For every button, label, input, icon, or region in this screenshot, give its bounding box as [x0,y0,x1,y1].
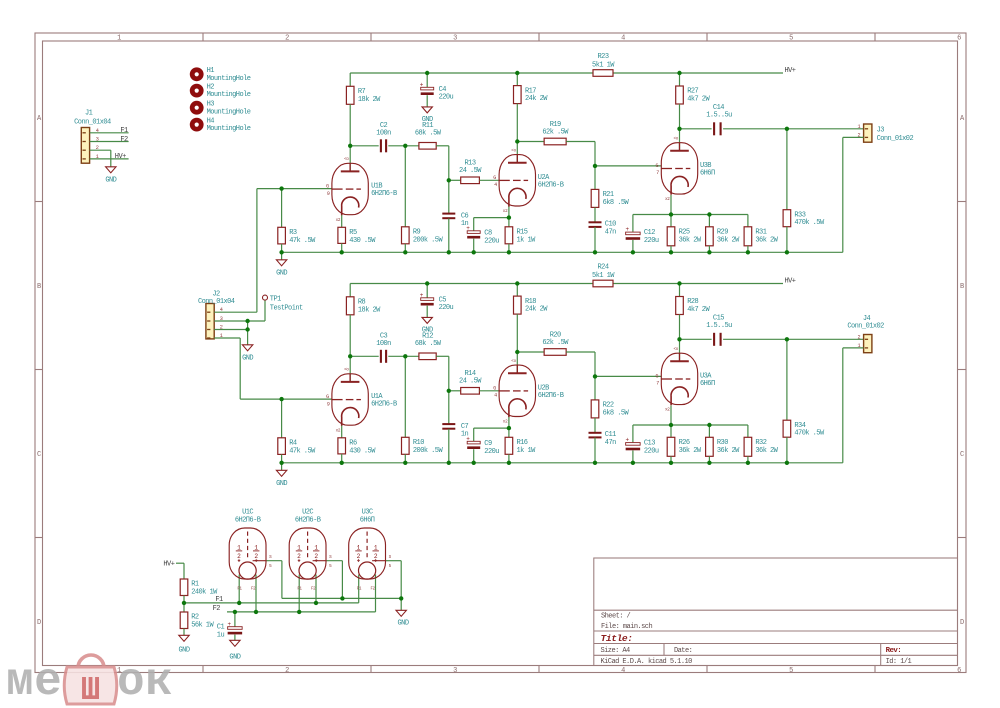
svg-text:220u: 220u [484,448,499,456]
svg-text:220u: 220u [644,447,659,455]
svg-text:24k 2W: 24k 2W [525,95,548,103]
svg-text:<o: <o [344,368,349,373]
svg-text:100n: 100n [376,129,391,137]
svg-text:HV+: HV+ [163,560,174,568]
svg-text:KiCad E.D.A. kicad 5.1.10: KiCad E.D.A. kicad 5.1.10 [601,658,693,666]
svg-text:TP1: TP1 [270,296,281,304]
svg-text:F2: F2 [311,588,316,592]
svg-text:<o: <o [674,137,679,142]
svg-text:HV+: HV+ [785,278,796,286]
svg-text:430 .5W: 430 .5W [349,237,376,245]
svg-text:U3A: U3A [700,372,712,380]
svg-text:x2: x2 [336,428,341,433]
svg-text:6H2П6-B: 6H2П6-B [371,190,397,198]
svg-text:G: G [656,163,659,169]
svg-text:R34: R34 [794,422,805,430]
svg-text:9: 9 [327,191,330,197]
svg-text:G: G [493,386,496,392]
svg-text:1: 1 [117,35,121,43]
svg-text:H1: H1 [207,67,215,75]
svg-text:Ш: Ш [81,672,101,708]
svg-text:F1: F1 [215,596,223,604]
svg-text:MountingHole: MountingHole [207,108,251,116]
svg-text:R24: R24 [598,263,609,271]
svg-text:R21: R21 [603,191,614,199]
svg-text:47n: 47n [605,439,616,447]
svg-text:4: 4 [621,35,625,43]
svg-text:R7: R7 [358,88,366,96]
svg-text:24k 2W: 24k 2W [525,306,548,314]
svg-text:430 .5W: 430 .5W [349,447,376,455]
svg-text:36k 2W: 36k 2W [679,236,702,244]
svg-text:220u: 220u [439,93,454,101]
svg-text:R5: R5 [349,229,357,237]
svg-text:R8: R8 [358,299,366,307]
svg-text:4: 4 [621,667,625,675]
svg-text:6H6П: 6H6П [360,516,375,524]
svg-text:U1B: U1B [371,182,382,190]
svg-text:B: B [960,283,964,291]
svg-text:U3C: U3C [362,509,373,517]
svg-text:A: A [37,115,42,123]
svg-text:62k .5W: 62k .5W [542,339,569,347]
svg-text:6k8 .5W: 6k8 .5W [603,199,630,207]
svg-text:x2: x2 [665,197,670,202]
svg-text:7: 7 [656,170,659,176]
svg-text:240k 1W: 240k 1W [191,589,218,597]
svg-text:MountingHole: MountingHole [207,125,251,133]
svg-text:2: 2 [285,35,289,43]
svg-text:R3: R3 [289,229,297,237]
svg-text:1: 1 [858,343,861,349]
svg-text:Size: A4: Size: A4 [601,647,631,655]
svg-text:S: S [389,555,392,560]
svg-text:F2: F2 [371,588,376,592]
svg-text:R9: R9 [413,229,421,237]
svg-text:C1: C1 [217,624,225,632]
svg-text:36k 2W: 36k 2W [717,447,740,455]
svg-text:18k 2W: 18k 2W [358,306,381,314]
svg-text:F2: F2 [213,605,221,613]
svg-text:Sheet: /: Sheet: / [601,612,631,620]
svg-text:GND: GND [398,619,409,627]
svg-text:R16: R16 [517,439,528,447]
svg-text:200k .5W: 200k .5W [413,447,444,455]
svg-text:R29: R29 [717,229,728,237]
svg-text:4k7 2W: 4k7 2W [687,306,710,314]
svg-text:G: G [493,175,496,181]
svg-text:R25: R25 [679,229,690,237]
svg-text:HV+: HV+ [785,67,796,75]
svg-text:ок: ок [117,656,173,708]
svg-text:Rev:: Rev: [886,647,902,655]
svg-text:18k 2W: 18k 2W [358,96,381,104]
svg-text:100n: 100n [376,340,391,348]
svg-text:x2: x2 [665,408,670,413]
svg-text:Date:: Date: [674,647,692,655]
svg-text:GND: GND [105,177,116,185]
svg-text:7: 7 [656,381,659,387]
svg-text:U3B: U3B [700,162,711,170]
svg-text:1k 1W: 1k 1W [517,447,537,455]
svg-text:R6: R6 [349,440,357,448]
svg-text:220u: 220u [484,237,499,245]
svg-text:6H2П6-B: 6H2П6-B [235,516,261,524]
svg-text:470k .5W: 470k .5W [794,219,825,227]
svg-text:U2B: U2B [538,384,549,392]
svg-text:47k .5W: 47k .5W [289,447,316,455]
svg-text:GND: GND [242,355,253,363]
svg-text:R28: R28 [687,298,698,306]
svg-text:<o: <o [344,157,349,162]
svg-text:R2: R2 [191,614,199,622]
svg-text:R1: R1 [191,581,199,589]
svg-text:File: main.sch: File: main.sch [601,623,652,631]
svg-text:C: C [37,451,41,459]
svg-text:R18: R18 [525,298,536,306]
svg-text:R22: R22 [603,402,614,410]
svg-text:GND: GND [179,646,190,654]
svg-text:C9: C9 [484,440,492,448]
svg-text:U1A: U1A [371,393,383,401]
svg-text:220u: 220u [439,304,454,312]
svg-text:36k 2W: 36k 2W [679,447,702,455]
svg-text:R27: R27 [687,88,698,96]
svg-text:x2: x2 [336,218,341,223]
svg-text:220u: 220u [644,237,659,245]
svg-text:1.5..5u: 1.5..5u [706,322,732,330]
svg-text:U1C: U1C [242,509,253,517]
svg-text:47k .5W: 47k .5W [289,237,316,245]
svg-text:5: 5 [329,564,332,569]
svg-text:Conn_01x02: Conn_01x02 [847,322,884,330]
svg-text:Conn_01x04: Conn_01x04 [74,119,111,127]
svg-text:B: B [37,283,41,291]
svg-text:x2: x2 [503,209,508,214]
svg-text:D: D [37,619,41,627]
svg-text:R17: R17 [525,87,536,95]
svg-text:S: S [329,555,332,560]
svg-text:Conn_01x04: Conn_01x04 [198,298,235,306]
svg-text:<o: <o [511,149,516,154]
svg-text:J1: J1 [85,109,93,117]
svg-text:470k .5W: 470k .5W [794,430,825,438]
svg-text:R30: R30 [717,439,728,447]
svg-text:4: 4 [494,182,497,188]
svg-text:F1: F1 [120,127,128,135]
svg-text:6H6П: 6H6П [700,380,715,388]
svg-text:G: G [326,394,329,400]
svg-text:1k 1W: 1k 1W [517,236,537,244]
svg-text:R4: R4 [289,440,297,448]
svg-text:62k .5W: 62k .5W [542,128,569,136]
svg-text:GND: GND [229,654,240,662]
svg-text:G: G [656,374,659,380]
svg-text:U2C: U2C [302,509,313,517]
svg-text:C: C [960,451,964,459]
svg-text:5k1 1W: 5k1 1W [592,61,615,69]
svg-text:200k .5W: 200k .5W [413,236,444,244]
svg-text:D: D [960,619,964,627]
svg-text:U2A: U2A [538,174,550,182]
svg-text:R15: R15 [517,229,528,237]
svg-text:6: 6 [957,35,961,43]
svg-text:1.5..5u: 1.5..5u [706,112,732,120]
svg-text:68k .5W: 68k .5W [415,129,442,137]
svg-text:36k 2W: 36k 2W [755,447,778,455]
svg-text:C8: C8 [484,230,492,238]
svg-text:6H2П6-B: 6H2П6-B [295,516,321,524]
svg-text:F1: F1 [297,588,302,592]
svg-text:36k 2W: 36k 2W [717,236,740,244]
svg-text:x2: x2 [503,420,508,425]
svg-text:C14: C14 [713,104,724,112]
svg-text:68k .5W: 68k .5W [415,340,442,348]
svg-text:J3: J3 [877,126,885,134]
svg-text:56k 1W: 56k 1W [191,622,214,630]
svg-text:5: 5 [269,564,272,569]
svg-text:ме: ме [6,656,62,708]
svg-text:3: 3 [453,667,457,675]
svg-text:C12: C12 [644,229,655,237]
svg-text:GND: GND [276,270,287,278]
svg-text:2: 2 [858,133,861,139]
svg-text:F1: F1 [357,588,362,592]
svg-text:R23: R23 [598,53,609,61]
svg-text:R31: R31 [755,229,766,237]
svg-text:G: G [326,184,329,190]
svg-text:R26: R26 [679,439,690,447]
svg-text:6H2П6-B: 6H2П6-B [371,401,397,409]
svg-text:6k8 .5W: 6k8 .5W [603,409,630,417]
svg-text:6: 6 [957,667,961,675]
svg-text:6H6П: 6H6П [700,170,715,178]
svg-text:R33: R33 [794,211,805,219]
svg-text:H4: H4 [207,117,215,125]
svg-text:MountingHole: MountingHole [207,75,251,83]
svg-text:4: 4 [494,393,497,399]
svg-text:1: 1 [858,124,861,130]
svg-text:C15: C15 [713,314,724,322]
svg-text:C13: C13 [644,440,655,448]
svg-text:36k 2W: 36k 2W [755,236,778,244]
svg-text:2: 2 [858,334,861,340]
svg-text:6H2П6-B: 6H2П6-B [538,392,564,400]
svg-text:24 .5W: 24 .5W [459,377,482,385]
svg-text:5: 5 [389,564,392,569]
svg-text:Conn_01x02: Conn_01x02 [877,135,914,143]
svg-text:GND: GND [276,480,287,488]
svg-text:R32: R32 [755,439,766,447]
svg-text:F2: F2 [120,136,128,144]
svg-text:5: 5 [789,667,793,675]
svg-text:9: 9 [327,401,330,407]
svg-text:5: 5 [789,35,793,43]
svg-text:1u: 1u [217,631,225,639]
svg-text:F2: F2 [251,588,256,592]
svg-text:<o: <o [674,347,679,352]
svg-text:R10: R10 [413,439,424,447]
svg-text:5k1 1W: 5k1 1W [592,272,615,280]
svg-text:S: S [269,555,272,560]
svg-text:2: 2 [285,667,289,675]
svg-text:47n: 47n [605,228,616,236]
svg-text:A: A [960,115,965,123]
svg-text:Title:: Title: [601,633,633,644]
svg-text:TestPoint: TestPoint [270,305,303,313]
svg-text:MountingHole: MountingHole [207,91,251,99]
svg-text:3: 3 [453,35,457,43]
svg-text:6H2П6-B: 6H2П6-B [538,182,564,190]
svg-text:Id: 1/1: Id: 1/1 [886,658,912,666]
svg-text:H2: H2 [207,83,215,91]
svg-text:HV+: HV+ [115,153,126,161]
svg-text:4k7 2W: 4k7 2W [687,96,710,104]
svg-text:24 .5W: 24 .5W [459,167,482,175]
svg-text:<o: <o [511,359,516,364]
svg-text:H3: H3 [207,101,215,109]
svg-text:F1: F1 [237,588,242,592]
